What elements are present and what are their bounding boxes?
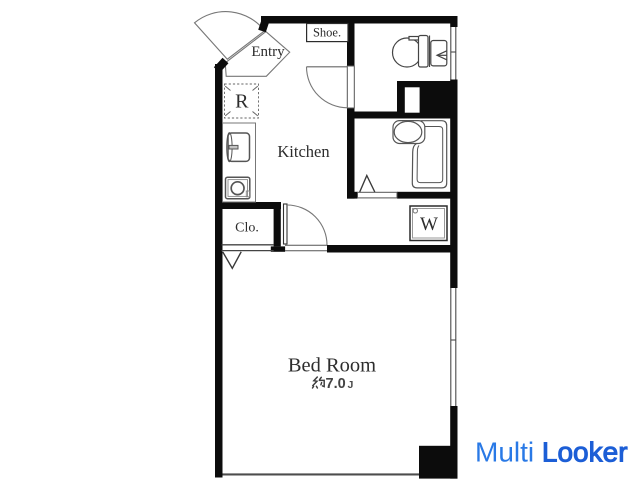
svg-text:Entry: Entry: [251, 44, 285, 60]
svg-text:W: W: [420, 214, 438, 235]
svg-text:R: R: [235, 91, 249, 113]
svg-text:7.0: 7.0: [326, 376, 346, 392]
svg-text:Bed Room: Bed Room: [288, 355, 376, 377]
svg-text:Shoe.: Shoe.: [313, 26, 341, 40]
svg-text:Clo.: Clo.: [235, 221, 259, 236]
svg-text:Multi Looker: Multi Looker: [475, 436, 628, 467]
svg-text:J: J: [348, 379, 354, 391]
svg-text:Kitchen: Kitchen: [277, 142, 329, 161]
